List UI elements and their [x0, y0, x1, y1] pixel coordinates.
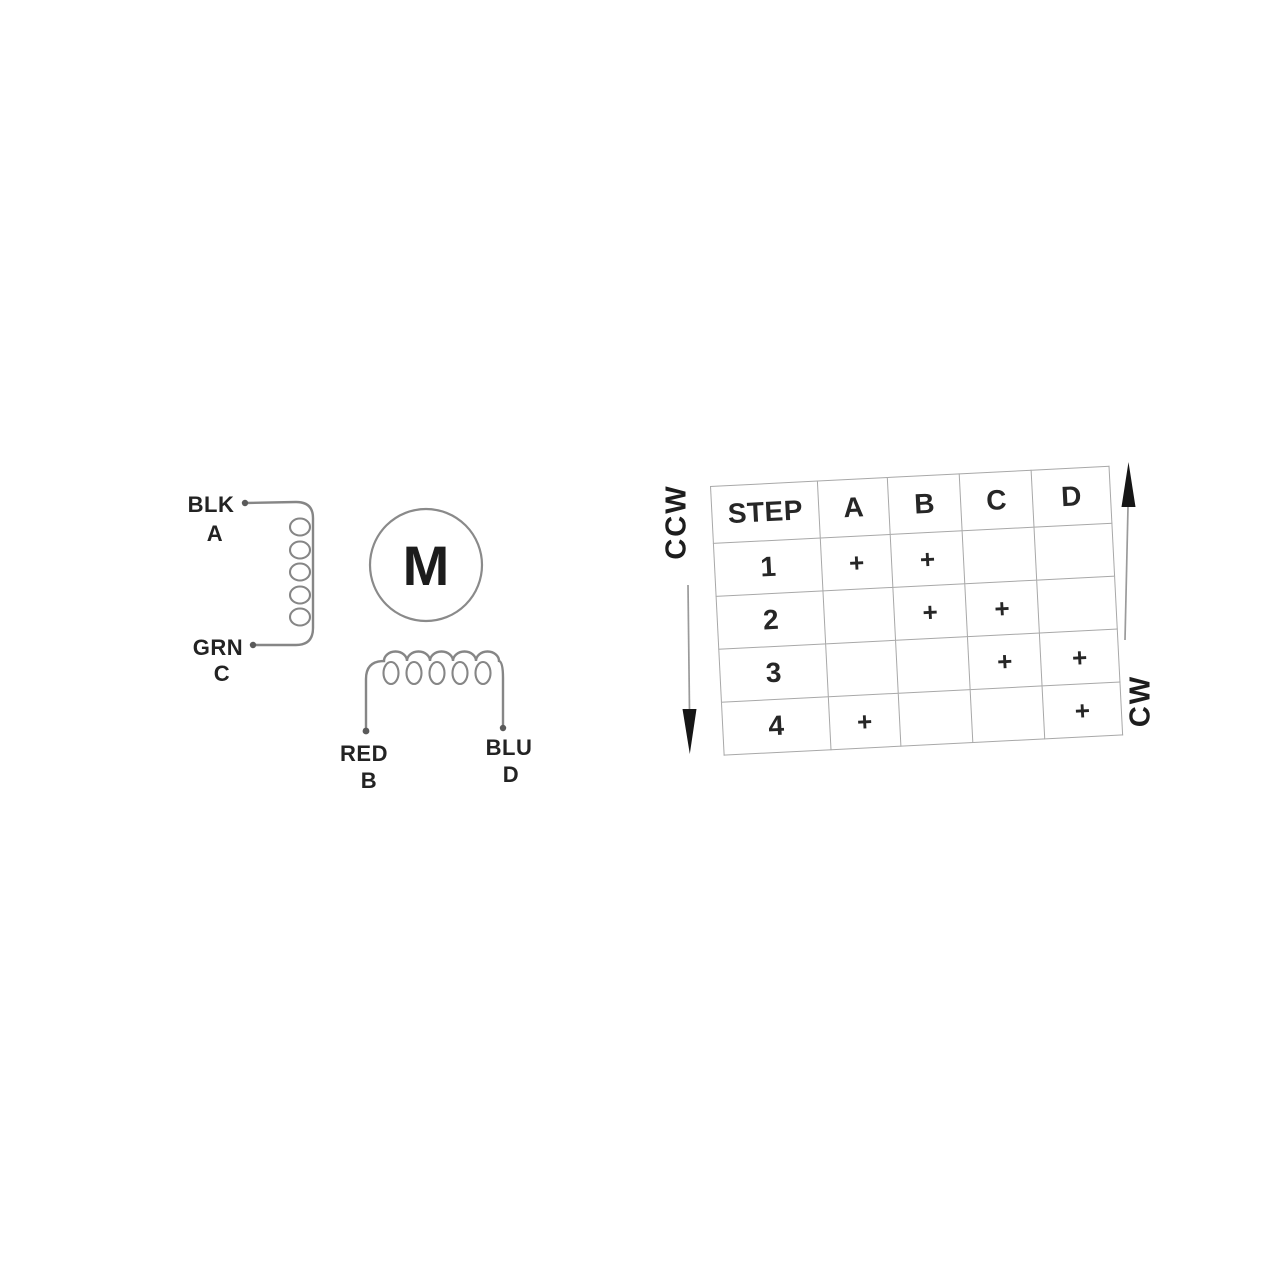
- col-header-step: STEP: [711, 481, 821, 543]
- stepper-motor-wiring-figure: BLK A GRN C M RED B BLU D CCW STEP: [0, 0, 1266, 1266]
- coil-loop: [430, 662, 445, 684]
- coil-loop: [290, 519, 310, 536]
- blu-wire-label: BLU: [486, 735, 533, 760]
- terminal-c-label: C: [214, 661, 230, 686]
- ccw-arrow: [676, 576, 704, 760]
- coil-loop: [453, 662, 468, 684]
- col-header-phase-d: D: [1031, 466, 1112, 527]
- step-number: 3: [719, 644, 829, 702]
- terminal-dot-blu: [500, 725, 506, 731]
- phase-cell: +: [1042, 682, 1123, 739]
- coil-loop: [384, 662, 399, 684]
- col-header-phase-a: A: [817, 478, 890, 538]
- cw-arrow-line: [1125, 507, 1128, 640]
- step-sequence-table: STEP A B C D 1 + + 2 + +: [710, 466, 1123, 756]
- ccw-label: CCW: [661, 484, 694, 559]
- blk-wire-label: BLK: [188, 492, 235, 517]
- coil-loop: [407, 662, 422, 684]
- coil-loop: [290, 542, 310, 559]
- cw-arrow: [1114, 458, 1144, 670]
- cw-label: CW: [1125, 675, 1158, 727]
- red-wire-label: RED: [340, 741, 388, 766]
- ccw-arrow-line: [688, 585, 690, 711]
- winding-ac-wire: [245, 502, 313, 645]
- phase-cell: +: [828, 693, 901, 749]
- phase-cell: +: [820, 534, 893, 590]
- step-number: 4: [721, 697, 831, 755]
- phase-cell: [1037, 576, 1118, 633]
- terminal-dot-grn: [250, 642, 256, 648]
- phase-cell: +: [1039, 629, 1120, 686]
- phase-cell: [970, 686, 1045, 743]
- phase-cell: [1034, 523, 1115, 580]
- terminal-dot-blk: [242, 500, 248, 506]
- coil-loop: [290, 609, 310, 626]
- terminal-b-label: B: [361, 768, 377, 793]
- coil-loop: [290, 587, 310, 604]
- terminal-d-label: D: [503, 762, 519, 787]
- phase-cell: [962, 527, 1037, 584]
- phase-cell: [898, 690, 973, 747]
- step-number: 1: [713, 538, 823, 596]
- coil-loop: [476, 662, 491, 684]
- col-header-phase-c: C: [959, 470, 1034, 531]
- wiring-diagram: BLK A GRN C M RED B BLU D: [160, 440, 580, 820]
- coil-loop: [290, 564, 310, 581]
- phase-cell: +: [967, 633, 1042, 690]
- terminal-dot-red: [363, 728, 370, 735]
- ccw-arrowhead-down: [683, 709, 697, 754]
- grn-wire-label: GRN: [193, 635, 243, 660]
- phase-cell: [896, 637, 971, 694]
- step-number: 2: [716, 591, 826, 649]
- terminal-a-label: A: [207, 521, 223, 546]
- phase-cell: +: [890, 531, 965, 588]
- motor-symbol: M: [403, 534, 450, 597]
- phase-cell: +: [893, 584, 968, 641]
- col-header-phase-b: B: [887, 474, 962, 535]
- cw-arrowhead-up: [1122, 462, 1136, 507]
- phase-cell: +: [965, 580, 1040, 637]
- phase-cell: [823, 587, 896, 643]
- phase-cell: [826, 640, 899, 696]
